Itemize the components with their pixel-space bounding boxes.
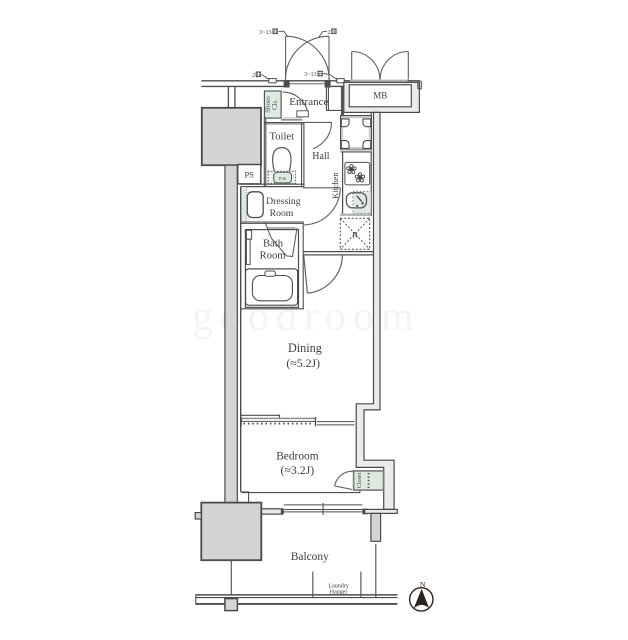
- svg-text:3~13: 3~13: [304, 71, 317, 78]
- svg-text:Laundry: Laundry: [328, 584, 348, 590]
- svg-text:N: N: [420, 580, 426, 589]
- svg-text:Room: Room: [270, 208, 294, 219]
- svg-text:2: 2: [328, 29, 331, 36]
- svg-text:PS: PS: [244, 170, 254, 180]
- svg-text:Dressing: Dressing: [266, 196, 301, 207]
- svg-text:Balcony: Balcony: [291, 551, 329, 563]
- svg-text:Room: Room: [260, 250, 287, 261]
- svg-text:Hall: Hall: [312, 151, 329, 162]
- svg-text:R: R: [352, 229, 358, 239]
- svg-text:P/St: P/St: [279, 176, 287, 181]
- svg-text:Bedroom: Bedroom: [276, 450, 319, 462]
- svg-text:Closet: Closet: [357, 472, 363, 488]
- svg-text:Entrance: Entrance: [289, 96, 328, 108]
- svg-text:(≈5.2J): (≈5.2J): [286, 356, 320, 370]
- svg-text:MB: MB: [373, 90, 387, 100]
- svg-text:Kitchen: Kitchen: [331, 172, 340, 199]
- svg-text:2: 2: [252, 72, 255, 79]
- svg-text:Cls.: Cls.: [271, 99, 279, 110]
- svg-text:Dining: Dining: [288, 341, 322, 355]
- svg-text:Toilet: Toilet: [270, 131, 295, 142]
- svg-text:(≈3.2J): (≈3.2J): [280, 463, 314, 477]
- svg-text:3~13: 3~13: [259, 29, 272, 36]
